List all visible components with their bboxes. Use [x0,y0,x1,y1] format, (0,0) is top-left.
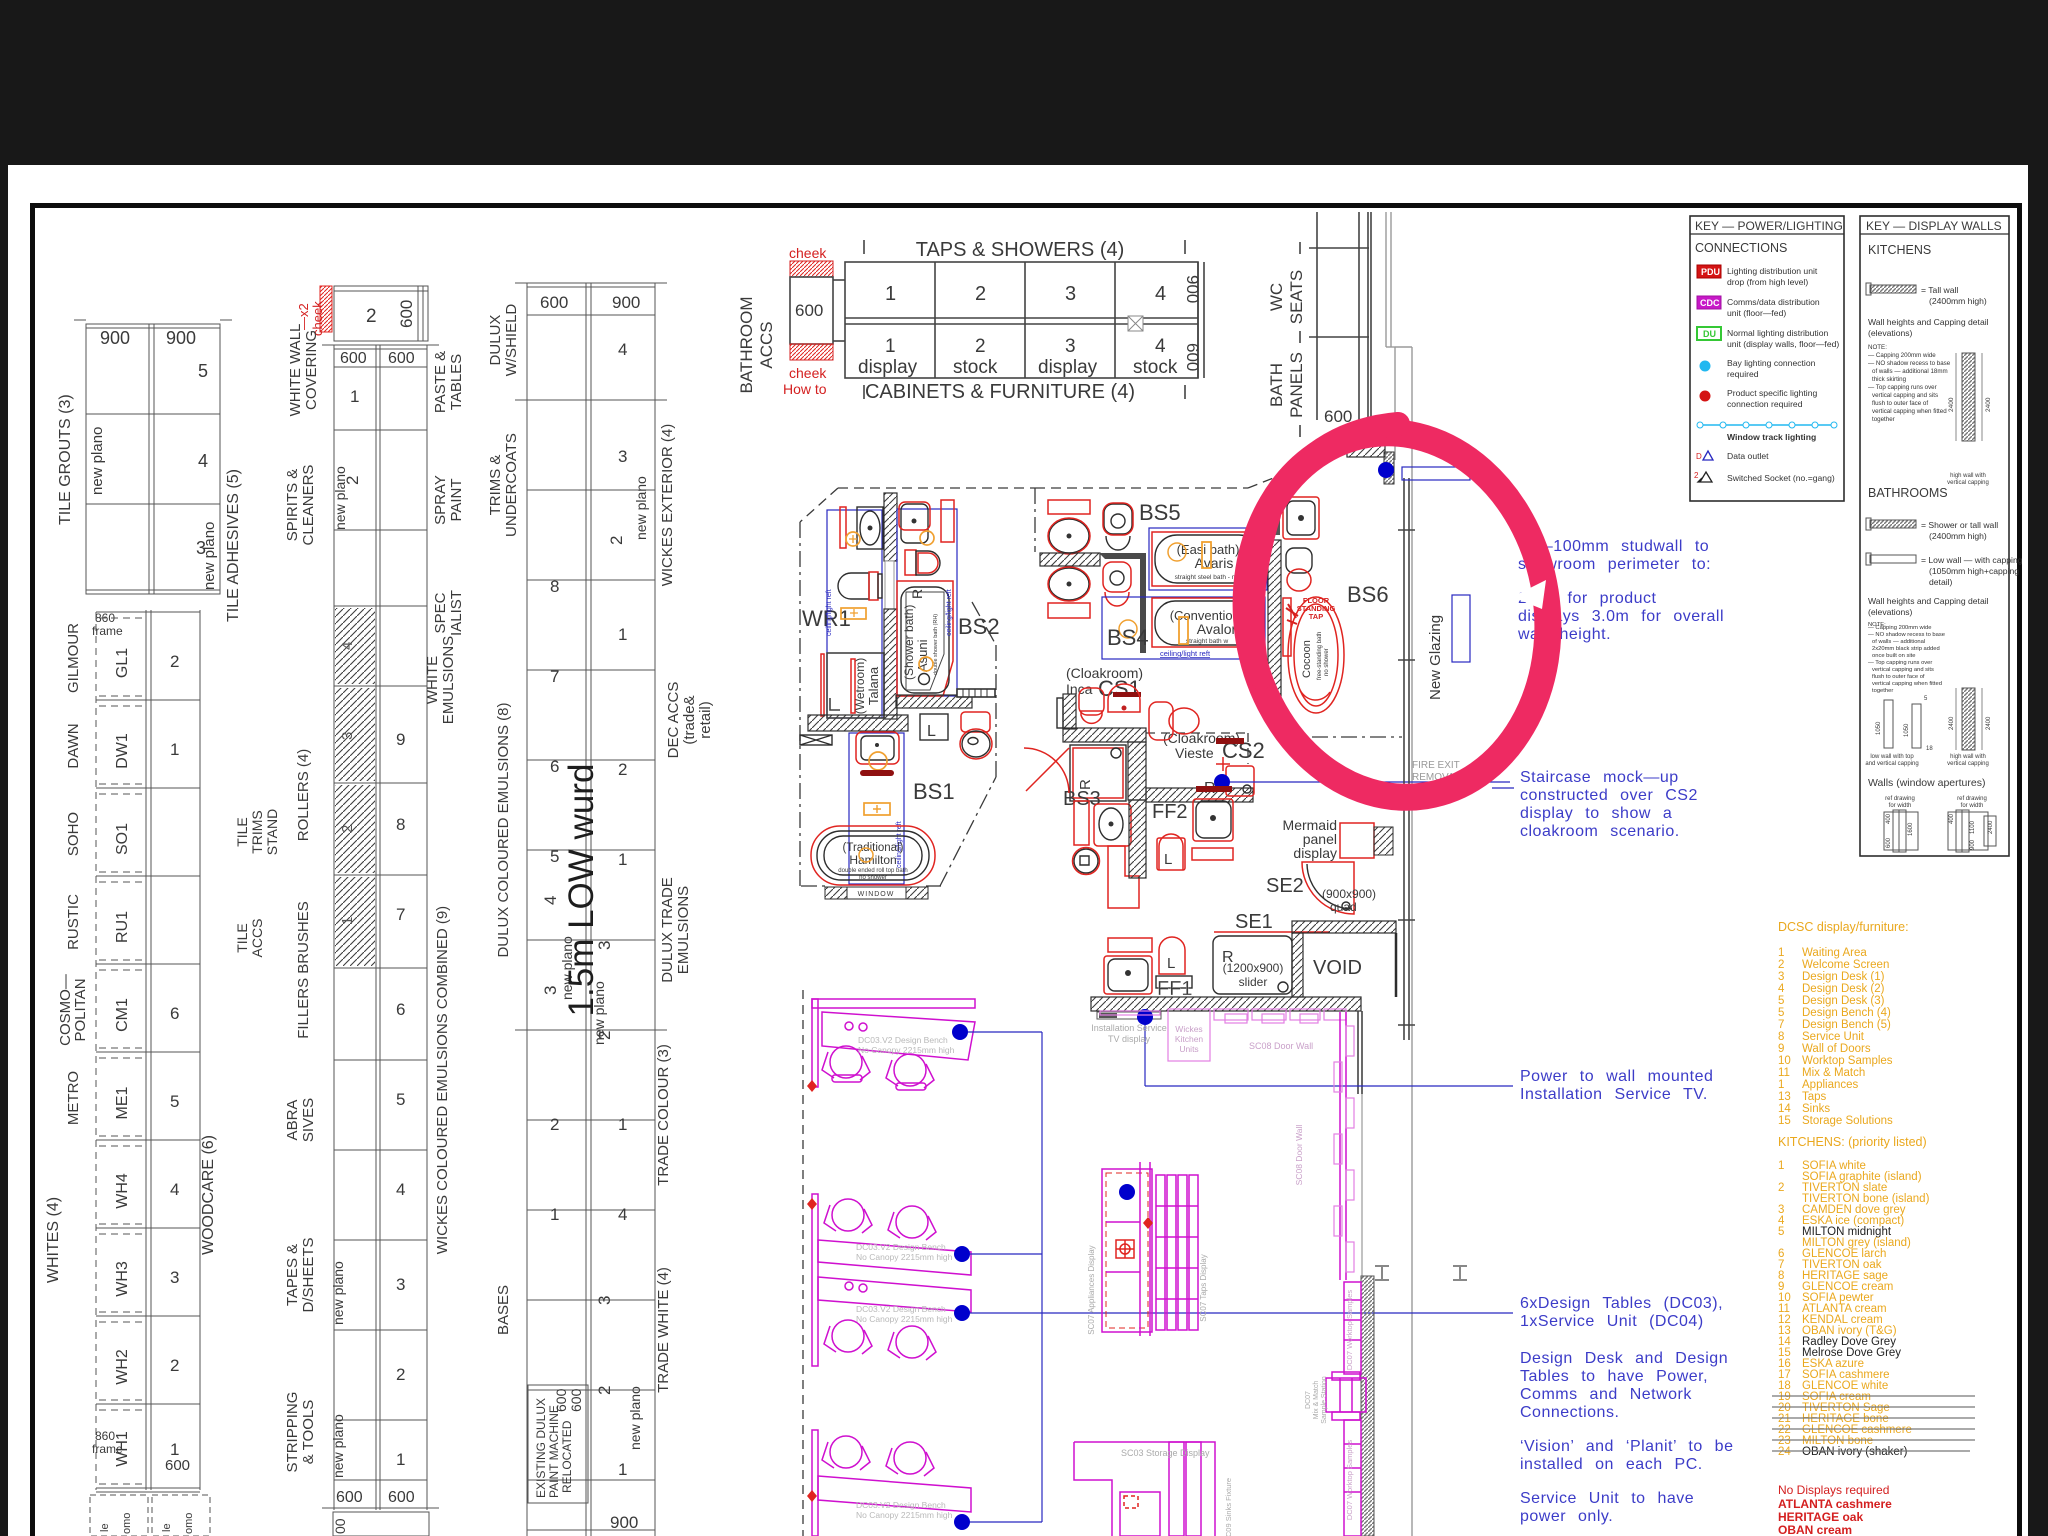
svg-text:& TOOLS: & TOOLS [300,1400,317,1464]
svg-text:TV display: TV display [1108,1034,1151,1044]
svg-text:cloakroom scenario.: cloakroom scenario. [1520,823,1680,840]
svg-text:vertical capping: vertical capping [1947,480,1989,486]
svg-text:WH3: WH3 [114,1261,131,1297]
svg-text:4: 4 [1155,283,1166,305]
svg-text:unit (display walls, floor—: unit (display walls, floor—fed) [1727,339,1839,349]
svg-text:vertical capping and sits: vertical capping and sits [1872,667,1934,673]
svg-text:KITCHENS: (priority listed): KITCHENS: (priority listed) [1778,1135,1927,1149]
svg-text:600: 600 [336,1489,363,1506]
svg-text:slider: slider [1239,975,1268,989]
svg-text:11: 11 [1778,1067,1790,1079]
svg-text:10: 10 [1778,1055,1791,1067]
svg-text:3: 3 [595,1296,614,1305]
svg-text:ME1: ME1 [114,1086,131,1119]
svg-text:WICKES EXTERIOR (4): WICKES EXTERIOR (4) [659,424,676,587]
svg-text:600: 600 [1183,343,1202,371]
svg-text:wall height.: wall height. [1517,626,1611,643]
svg-text:Product specific lighting: Product specific lighting [1727,388,1818,398]
svg-text:5: 5 [550,847,559,866]
svg-text:900: 900 [1970,839,1976,850]
svg-text:KITCHENS: KITCHENS [1868,243,1931,257]
svg-text:vertical capping when fitted: vertical capping when fitted [1872,681,1942,687]
svg-text:4: 4 [396,1180,405,1199]
svg-text:‘Vision’ and ‘Planit’ to b: ‘Vision’ and ‘Planit’ to be [1520,1438,1733,1455]
svg-text:cheek: cheek [789,245,827,261]
svg-text:SC09 Sinks Fixture: SC09 Sinks Fixture [1224,1478,1233,1536]
svg-text:BS1: BS1 [913,779,955,804]
svg-text:3: 3 [170,1268,179,1287]
svg-text:No Canopy 2215mm high: No Canopy 2215mm high [856,1314,953,1324]
svg-text:900: 900 [1183,275,1202,303]
svg-text:2400: 2400 [1986,716,1992,730]
svg-text:(1200x900): (1200x900) [1223,961,1284,975]
svg-text:600: 600 [795,301,823,320]
svg-text:Avaris: Avaris [1195,555,1234,571]
svg-text:2x20mm black strip added: 2x20mm black strip added [1872,646,1940,652]
svg-text:TAP: TAP [1309,612,1323,621]
svg-text:3: 3 [1778,971,1784,983]
svg-text:4: 4 [339,642,356,650]
svg-text:4: 4 [198,451,208,471]
svg-text:SOHO: SOHO [65,812,82,856]
svg-text:860: 860 [95,1429,115,1443]
svg-text:13: 13 [1778,1091,1791,1103]
svg-text:Design Desk and Design: Design Desk and Design [1520,1350,1728,1367]
svg-text:Comms and Network: Comms and Network [1520,1386,1692,1403]
svg-text:TAPES &: TAPES & [284,1244,301,1306]
svg-text:900: 900 [166,328,196,348]
svg-text:Comms/data distribution: Comms/data distribution [1727,297,1820,307]
svg-text:DCSC display/furniture:: DCSC display/furniture: [1778,920,1909,934]
svg-text:TILE GROUTS (3): TILE GROUTS (3) [57,394,74,525]
svg-text:TAPS & SHOWERS (4): TAPS & SHOWERS (4) [916,239,1125,261]
svg-text:ceiling/light reft: ceiling/light reft [826,589,833,636]
svg-text:ref drawing: ref drawing [1885,796,1915,802]
svg-text:DC03.V2 Design Bench: DC03.V2 Design Bench [858,1035,948,1045]
svg-text:D/SHEETS: D/SHEETS [300,1237,317,1312]
svg-text:ceiling/light reft: ceiling/light reft [1160,649,1211,658]
svg-text:14: 14 [1778,1103,1791,1115]
svg-text:DULUX TRADE: DULUX TRADE [659,877,676,983]
svg-text:— Top capping runs over: — Top capping runs over [1868,384,1937,391]
svg-text:BS5: BS5 [1139,500,1181,525]
svg-text:WINDOW: WINDOW [858,891,895,898]
svg-text:2: 2 [607,536,626,545]
svg-text:no shower: no shower [1324,648,1330,676]
svg-text:DAWN: DAWN [65,723,82,768]
svg-text:600: 600 [568,1388,584,1412]
svg-text:OBAN cream: OBAN cream [1778,1523,1852,1536]
svg-text:SPEC: SPEC [432,592,449,633]
svg-text:Worktop Samples: Worktop Samples [1802,1055,1893,1067]
svg-text:8: 8 [396,815,405,834]
svg-text:SC08 Door Wall: SC08 Door Wall [1249,1041,1313,1051]
svg-text:Mix & Match: Mix & Match [1313,1381,1320,1420]
svg-text:stock: stock [1133,357,1178,378]
svg-text:No Displays required: No Displays required [1778,1483,1889,1497]
svg-text:No Canopy 2215mm high: No Canopy 2215mm high [856,1510,953,1520]
svg-text:1: 1 [350,387,359,406]
svg-text:Service Unit: Service Unit [1802,1031,1865,1043]
svg-text:Switched Socket (no.=gang): Switched Socket (no.=gang) [1727,473,1835,483]
svg-text:SIVES: SIVES [300,1098,317,1142]
svg-text:(Wetroom): (Wetroom) [853,658,867,714]
svg-text:omo: omo [121,1513,133,1534]
svg-text:display: display [1038,357,1098,378]
svg-text:2: 2 [170,1356,179,1375]
svg-text:5: 5 [170,1092,179,1111]
svg-text:Data outlet: Data outlet [1727,451,1769,461]
svg-text:1.5m LOW wurd: 1.5m LOW wurd [562,764,601,1017]
svg-text:1: 1 [618,850,627,869]
svg-text:together: together [1872,416,1895,423]
svg-text:9: 9 [396,730,405,749]
svg-text:No Canopy 2215mm high: No Canopy 2215mm high [858,1045,955,1055]
svg-text:double shower bath (RH): double shower bath (RH) [933,614,939,675]
svg-text:for width: for width [1889,803,1912,809]
svg-text:8: 8 [1778,1031,1784,1043]
svg-text:le: le [161,1523,173,1532]
svg-text:frame: frame [92,624,123,638]
svg-text:PDU: PDU [1701,267,1720,277]
svg-text:1: 1 [396,1450,405,1469]
svg-text:5: 5 [396,1090,405,1109]
svg-text:Installation Service: Installation Service [1091,1023,1167,1033]
svg-text:free-standing bath: free-standing bath [1317,632,1323,680]
svg-text:WH4: WH4 [114,1173,131,1209]
svg-text:2: 2 [975,336,986,357]
svg-text:FF2: FF2 [1152,801,1188,823]
svg-text:vertical capping and sits: vertical capping and sits [1872,392,1938,399]
svg-text:Tables to have Power,: Tables to have Power, [1520,1368,1708,1385]
svg-text:of walls — additional: of walls — additional [1872,639,1925,645]
svg-text:Storage Solutions: Storage Solutions [1802,1115,1893,1127]
svg-text:constructed over CS2: constructed over CS2 [1520,787,1698,804]
svg-text:Lighting distribution unit: Lighting distribution unit [1727,266,1818,276]
svg-text:2: 2 [1778,959,1784,971]
svg-text:BS2: BS2 [958,614,1000,639]
svg-text:— NO shadow recess to base: — NO shadow recess to base [1868,360,1951,367]
svg-text:Taps: Taps [1802,1091,1827,1103]
svg-text:UNDERCOATS: UNDERCOATS [503,433,520,537]
svg-text:straight bath w: straight bath w [1186,638,1229,645]
svg-text:DC07 Worktop Samples: DC07 Worktop Samples [1345,1440,1354,1521]
svg-text:2: 2 [366,306,377,327]
svg-text:DULUX COLOURED EMULSIONS (8: DULUX COLOURED EMULSIONS (8) [495,702,512,957]
svg-text:Design Desk (2): Design Desk (2) [1802,983,1885,995]
svg-text:new plano: new plano [330,1261,346,1325]
svg-text:no shower: no shower [859,875,887,881]
svg-text:TILE: TILE [234,817,250,847]
svg-text:TILE ADHESIVES (5): TILE ADHESIVES (5) [225,469,242,622]
svg-text:Waiting Area: Waiting Area [1802,947,1867,959]
svg-text:SPRAY: SPRAY [432,475,449,525]
svg-text:stock: stock [953,357,998,378]
svg-text:5: 5 [1778,995,1784,1007]
svg-text:detail): detail) [1929,577,1953,587]
svg-text:CONNECTIONS: CONNECTIONS [1695,241,1787,255]
svg-text:RELOCATED: RELOCATED [560,1420,574,1493]
svg-text:BASES: BASES [495,1285,512,1335]
svg-text:Design Bench (5): Design Bench (5) [1802,1019,1891,1031]
svg-text:2400: 2400 [1985,397,1992,412]
svg-text:4: 4 [618,1205,627,1224]
svg-text:6: 6 [396,1000,405,1019]
svg-text:vertical capping when fitted: vertical capping when fitted [1872,408,1947,415]
svg-text:high wall with: high wall with [1950,754,1986,760]
svg-text:IALIST: IALIST [448,590,465,636]
svg-text:BATHROOM: BATHROOM [737,297,756,394]
svg-text:Design Bench (4): Design Bench (4) [1802,1007,1891,1019]
svg-text:SC08 Door Wall: SC08 Door Wall [1294,1125,1304,1186]
svg-text:ABRA: ABRA [284,1100,301,1141]
svg-text:TRADE COLOUR (3): TRADE COLOUR (3) [655,1044,672,1186]
svg-text:1: 1 [885,283,896,305]
svg-text:2: 2 [975,283,986,305]
svg-text:4: 4 [541,896,560,905]
svg-text:Power to wall mounted: Power to wall mounted [1520,1068,1713,1085]
svg-text:ROLLERS (4): ROLLERS (4) [295,749,312,842]
svg-text:600: 600 [388,350,415,367]
svg-text:3: 3 [1065,336,1076,357]
svg-text:8: 8 [550,577,559,596]
svg-text:2: 2 [550,1115,559,1134]
svg-text:SO1: SO1 [114,823,131,855]
svg-text:(1050mm high+capping: (1050mm high+capping [1929,566,2019,576]
svg-text:KEY — DISPLAY WALLS: KEY — DISPLAY WALLS [1866,219,2002,233]
svg-text:STRIPPING: STRIPPING [284,1392,301,1473]
svg-text:low wall with top: low wall with top [1870,754,1914,760]
svg-text:(trade&: (trade& [681,695,698,744]
svg-text:RU1: RU1 [114,911,131,943]
svg-text:Kitchen: Kitchen [1175,1034,1204,1044]
svg-text:6: 6 [170,1004,179,1023]
svg-text:PAINT MACHINE: PAINT MACHINE [547,1405,561,1498]
svg-text:2: 2 [1778,1182,1784,1194]
svg-text:once built on site: once built on site [1872,653,1916,659]
svg-text:VOID: VOID [1313,957,1362,979]
svg-text:quad: quad [1330,900,1357,914]
svg-text:600: 600 [165,1457,190,1474]
svg-text:1: 1 [618,1460,627,1479]
svg-text:2: 2 [618,760,627,779]
svg-text:WHITE WALL: WHITE WALL [287,324,304,417]
svg-text:— Capping 200mm wide: — Capping 200mm wide [1868,625,1931,631]
svg-text:WC: WC [1267,283,1286,311]
svg-text:Asuni: Asuni [915,639,930,672]
svg-text:1: 1 [339,917,356,925]
svg-text:SC07 Taps Display: SC07 Taps Display [1199,1254,1208,1321]
svg-text:600: 600 [1886,837,1892,848]
svg-text:OBAN ivory (shaker): OBAN ivory (shaker) [1802,1446,1908,1458]
svg-text:(900x900): (900x900) [1322,887,1376,901]
svg-text:PAINT: PAINT [448,478,465,521]
svg-text:4: 4 [618,340,627,359]
svg-text:2: 2 [396,1365,405,1384]
svg-text:PASTE &: PASTE & [432,351,449,413]
svg-text:1: 1 [550,1205,559,1224]
svg-text:900: 900 [610,1513,638,1532]
svg-text:PANELS: PANELS [1287,352,1306,418]
svg-text:1100: 1100 [1970,820,1976,834]
svg-text:(Shower bath): (Shower bath) [902,605,916,680]
svg-text:Bay lighting connection: Bay lighting connection [1727,358,1816,368]
svg-text:1050: 1050 [1904,723,1910,737]
svg-text:= Tall wall: = Tall wall [1921,285,1958,295]
svg-text:HERITAGE oak: HERITAGE oak [1778,1510,1863,1524]
svg-text:SEATS: SEATS [1287,270,1306,324]
svg-text:ACCS: ACCS [249,919,265,958]
svg-text:2: 2 [170,652,179,671]
svg-text:W/SHIELD: W/SHIELD [503,304,520,377]
svg-text:DEC ACCS: DEC ACCS [665,682,682,759]
svg-text:Window track lighting: Window track lighting [1727,432,1816,442]
svg-text:= Shower or tall wall: = Shower or tall wall [1921,520,1998,530]
svg-text:Talana: Talana [866,666,881,705]
svg-text:ATLANTA cashmere: ATLANTA cashmere [1778,1497,1892,1511]
svg-text:DC07: DC07 [1305,1391,1312,1409]
svg-text:GILMOUR: GILMOUR [65,623,82,693]
svg-text:FIRE EXIT: FIRE EXIT [1412,760,1460,771]
svg-text:WH2: WH2 [114,1349,131,1385]
svg-text:Units: Units [1179,1044,1198,1054]
svg-text:new plano: new plano [201,522,218,590]
svg-text:CLEANERS: CLEANERS [300,465,317,546]
svg-text:4: 4 [1155,336,1166,357]
svg-text:SE1: SE1 [1235,911,1273,933]
svg-text:RUSTIC: RUSTIC [65,894,82,950]
svg-text:— NO shadow recess to base: — NO shadow recess to base [1868,632,1945,638]
svg-text:7: 7 [1778,1019,1784,1031]
svg-text:DC07 Worktop Samples: DC07 Worktop Samples [1345,1290,1354,1371]
svg-text:6xDesign Tables (DC03),: 6xDesign Tables (DC03), [1520,1295,1723,1312]
svg-text:METRO: METRO [65,1071,82,1125]
svg-text:= Low wall — with capping: = Low wall — with capping [1921,555,2023,565]
svg-text:cheek: cheek [789,365,827,381]
svg-text:omo: omo [183,1513,195,1534]
svg-text:Mix & Match: Mix & Match [1802,1067,1865,1079]
svg-text:SC07 Appliances Display: SC07 Appliances Display [1087,1245,1096,1334]
svg-text:POLITAN: POLITAN [72,978,89,1041]
svg-text:WICKES COLOURED EMULSIONS C: WICKES COLOURED EMULSIONS COMBINED (9) [434,906,451,1254]
svg-text:frame: frame [92,1442,123,1456]
svg-text:600: 600 [340,350,367,367]
svg-text:WHITE: WHITE [424,656,441,704]
svg-text:1: 1 [1778,947,1784,959]
svg-text:600: 600 [397,300,416,328]
svg-text:TRIMS &: TRIMS & [487,455,504,516]
svg-text:EMULSIONS: EMULSIONS [440,636,457,724]
svg-text:ref drawing: ref drawing [1957,796,1987,802]
svg-text:WHITES (4): WHITES (4) [45,1197,62,1283]
svg-text:power only.: power only. [1520,1508,1613,1525]
svg-text:retail): retail) [697,701,714,739]
svg-text:1xService Unit (DC04): 1xService Unit (DC04) [1520,1313,1704,1330]
svg-text:EXISTING DULUX: EXISTING DULUX [534,1398,548,1498]
svg-text:DC03.V2 Design Bench: DC03.V2 Design Bench [856,1500,946,1510]
svg-text:— Capping 200mm wide: — Capping 200mm wide [1868,352,1936,359]
svg-text:400: 400 [1949,813,1955,824]
svg-text:1600: 1600 [1908,822,1914,836]
svg-text:WOODCARE (6): WOODCARE (6) [200,1135,217,1255]
svg-text:new plano: new plano [627,1386,643,1450]
svg-text:COVERING: COVERING [303,330,320,410]
svg-text:together: together [1872,688,1893,694]
svg-text:thick skirting: thick skirting [1872,376,1907,383]
svg-text:Wall heights and Capping d: Wall heights and Capping detail [1868,317,1989,327]
svg-text:straight steel bath - n: straight steel bath - n [1175,574,1236,581]
svg-text:CDC: CDC [1700,298,1720,308]
svg-text:1: 1 [1778,1160,1784,1172]
svg-text:SE2: SE2 [1266,875,1304,897]
svg-text:5: 5 [198,361,208,381]
svg-text:DC03.V2 Design Bench: DC03.V2 Design Bench [856,1242,946,1252]
svg-text:FILLERS BRUSHES: FILLERS BRUSHES [295,901,312,1039]
svg-text:TRADE WHITE (4): TRADE WHITE (4) [655,1267,672,1393]
svg-text:2400: 2400 [1948,397,1955,412]
svg-text:900: 900 [100,328,130,348]
svg-text:Vieste: Vieste [1175,745,1214,761]
svg-text:(2400mm high): (2400mm high) [1929,296,1987,306]
svg-text:EMULSIONS: EMULSIONS [675,886,692,974]
svg-text:KEY — POWER/LIGHTING: KEY — POWER/LIGHTING [1695,219,1843,233]
svg-text:TABLES: TABLES [448,354,465,410]
svg-text:flush to outer face of: flush to outer face of [1872,674,1925,680]
svg-text:new plano: new plano [330,1414,346,1478]
svg-text:DULUX: DULUX [487,315,504,366]
svg-text:Avalon: Avalon [1197,621,1240,637]
svg-text:Design Desk (3): Design Desk (3) [1802,995,1885,1007]
svg-text:GL1: GL1 [114,648,131,678]
svg-text:24: 24 [1778,1446,1791,1458]
svg-text:display: display [1293,845,1337,861]
svg-text:le: le [99,1523,111,1532]
svg-text:New Glazing: New Glazing [1427,615,1444,700]
svg-text:D: D [1696,452,1702,461]
svg-text:2: 2 [595,1386,614,1395]
svg-text:1: 1 [885,336,896,357]
svg-text:high wall with: high wall with [1950,473,1986,479]
svg-text:1: 1 [618,625,627,644]
svg-text:L: L [1164,851,1172,868]
svg-text:— Top capping runs over: — Top capping runs over [1868,660,1932,666]
svg-text:SPIRITS &: SPIRITS & [284,469,301,542]
svg-text:1: 1 [170,740,179,759]
svg-text:ACCS: ACCS [757,321,776,368]
svg-text:installed on each PC.: installed on each PC. [1520,1456,1703,1473]
svg-text:new plano: new plano [633,476,649,540]
svg-text:ceiling/light reft: ceiling/light reft [946,589,953,636]
svg-text:DC03.V2 Design Bench: DC03.V2 Design Bench [856,1304,946,1314]
svg-text:L: L [927,723,936,740]
svg-text:9: 9 [1778,1043,1784,1055]
svg-text:(elevations): (elevations) [1868,607,1913,617]
svg-text:Cocoon: Cocoon [1301,640,1313,678]
svg-text:5: 5 [1778,1007,1784,1019]
svg-text:double ended roll top bath: double ended roll top bath [838,868,907,874]
svg-text:and vertical capping: and vertical capping [1865,761,1918,767]
svg-text:NOTE:: NOTE: [1868,344,1887,351]
svg-text:400: 400 [1886,813,1892,824]
svg-text:5: 5 [1778,1226,1784,1238]
svg-text:BATHROOMS: BATHROOMS [1868,486,1948,500]
svg-text:7: 7 [550,667,559,686]
svg-text:How to: How to [783,381,827,397]
svg-text:SC03 Storage Display: SC03 Storage Display [1121,1448,1210,1458]
svg-text:3: 3 [339,732,356,740]
svg-text:1050: 1050 [1876,721,1882,735]
svg-text:3: 3 [1065,283,1076,305]
